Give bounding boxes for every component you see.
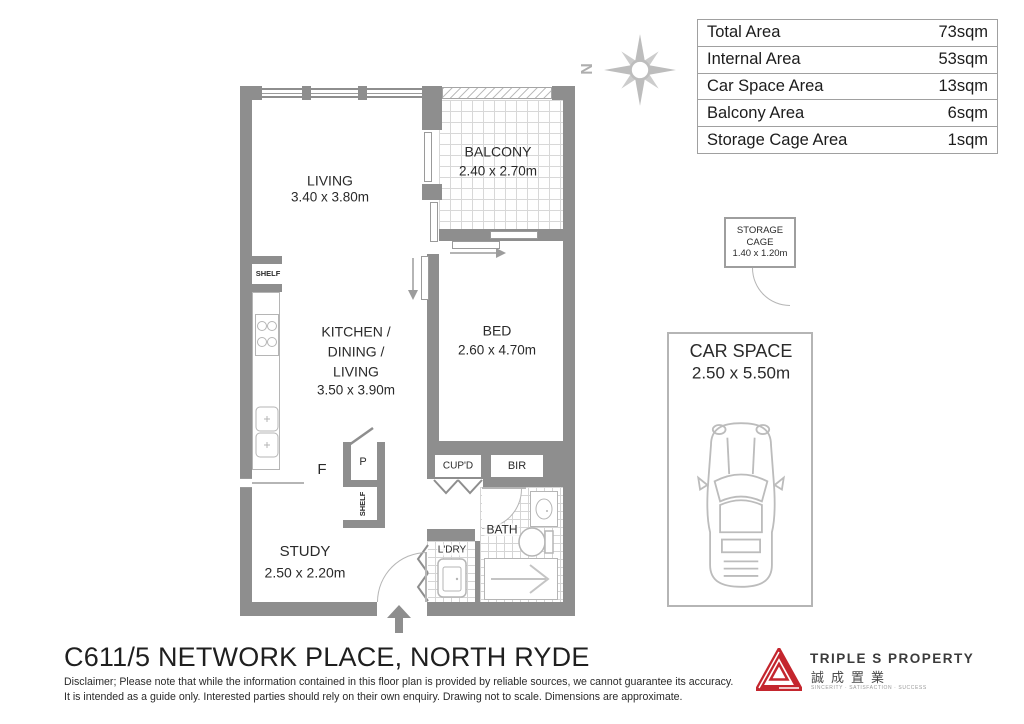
car-space: CAR SPACE 2.50 x 5.50m bbox=[667, 332, 813, 607]
wall-bottom-left bbox=[240, 602, 377, 616]
table-row: Total Area 73sqm bbox=[697, 19, 998, 47]
brand-tagline: SINCERITY · SATISFACTION · SUCCESS bbox=[811, 685, 927, 691]
floor-plan-page: { "page": { "title": "C611/5 NETWORK PLA… bbox=[0, 0, 1024, 724]
brand-chinese-name: 誠成置業 bbox=[811, 667, 891, 686]
area-label: Internal Area bbox=[707, 50, 801, 69]
property-address-title: C611/5 NETWORK PLACE, NORTH RYDE bbox=[64, 642, 590, 673]
shelf-wall-stub bbox=[252, 256, 282, 264]
kitchen-dims: 3.50 x 3.90m bbox=[317, 384, 395, 399]
pantry-wall-bottom bbox=[343, 520, 385, 528]
balcony-railing bbox=[442, 87, 552, 99]
shelf-wall-stub bbox=[252, 284, 282, 292]
table-row: Car Space Area 13sqm bbox=[697, 73, 998, 101]
area-value: 1sqm bbox=[948, 131, 988, 150]
wall-below-robe bbox=[483, 479, 563, 487]
car-icon bbox=[691, 414, 791, 596]
robe-label: BIR bbox=[508, 460, 526, 472]
shelf-vertical-label: SHELF bbox=[359, 492, 367, 517]
compass-north-label: N bbox=[579, 63, 597, 75]
disclaimer-line1: Disclaimer; Please note that while the i… bbox=[64, 676, 733, 688]
area-label: Car Space Area bbox=[707, 77, 823, 96]
storage-cage-line2: CAGE bbox=[747, 237, 774, 249]
compass-rose-icon bbox=[602, 32, 678, 108]
sliding-door-panel bbox=[430, 202, 438, 242]
living-name: LIVING bbox=[307, 173, 353, 188]
washer-icon bbox=[437, 558, 467, 598]
pantry-door-leaf bbox=[345, 424, 377, 446]
bed-name: BED bbox=[483, 323, 512, 338]
wall-bed-bottom bbox=[427, 441, 575, 453]
area-value: 13sqm bbox=[938, 77, 988, 96]
storage-cage-door-arc bbox=[752, 268, 790, 306]
robe-wall-right bbox=[545, 453, 563, 479]
basin-icon bbox=[530, 491, 558, 527]
living-dims: 3.40 x 3.80m bbox=[291, 191, 369, 206]
living-window bbox=[262, 88, 422, 98]
sliding-door-panel bbox=[421, 256, 429, 300]
table-row: Internal Area 53sqm bbox=[697, 46, 998, 74]
bath-label: BATH bbox=[484, 523, 519, 536]
study-dims: 2.50 x 2.20m bbox=[265, 565, 346, 580]
wall-left bbox=[240, 86, 252, 616]
area-label: Balcony Area bbox=[707, 104, 804, 123]
entry-door-arc bbox=[377, 552, 427, 602]
balcony-dims: 2.40 x 2.70m bbox=[459, 165, 537, 180]
disclaimer-line2: It is intended as a guide only. Interest… bbox=[64, 691, 683, 703]
entry-door-leaf bbox=[425, 552, 427, 602]
entry-arrow-icon bbox=[387, 605, 411, 633]
kitchen-name-line3: LIVING bbox=[333, 364, 379, 379]
storage-cage-dims: 1.40 x 1.20m bbox=[733, 248, 788, 260]
cupboard-doors-icon bbox=[433, 479, 483, 495]
wall-top-mid bbox=[422, 86, 442, 100]
study-window bbox=[240, 478, 252, 488]
kitchen-name-line1: KITCHEN / bbox=[321, 324, 390, 339]
floor-plan: BALCONY 2.40 x 2.70m LIVING 3.40 x 3.80m… bbox=[240, 86, 575, 616]
kitchen-name-line2: DINING / bbox=[328, 344, 385, 359]
area-label: Storage Cage Area bbox=[707, 131, 847, 150]
car-space-dims: 2.50 x 5.50m bbox=[692, 365, 790, 384]
kitchen-bench-return bbox=[252, 482, 304, 484]
table-row: Balcony Area 6sqm bbox=[697, 99, 998, 127]
area-summary-table: Total Area 73sqm Internal Area 53sqm Car… bbox=[697, 19, 998, 154]
window-mullion bbox=[358, 86, 367, 100]
laundry-wall-top bbox=[427, 529, 475, 541]
storage-cage: STORAGE CAGE 1.40 x 1.20m bbox=[724, 217, 796, 268]
sliding-door-panel bbox=[490, 231, 538, 239]
toilet-icon bbox=[518, 526, 554, 558]
wall-right bbox=[563, 86, 575, 616]
fridge-label: F bbox=[317, 462, 326, 479]
brand-name: TRIPLE S PROPERTY bbox=[810, 651, 974, 666]
laundry-bath-divider bbox=[475, 541, 480, 602]
area-value: 53sqm bbox=[938, 50, 988, 69]
balcony-name: BALCONY bbox=[465, 144, 532, 159]
shelf-top-label: SHELF bbox=[256, 270, 281, 278]
table-row: Storage Cage Area 1sqm bbox=[697, 126, 998, 154]
study-name: STUDY bbox=[280, 544, 331, 561]
storage-cage-line1: STORAGE bbox=[737, 225, 783, 237]
wall-living-balcony bbox=[422, 184, 442, 200]
compass: N bbox=[594, 32, 684, 108]
sliding-door-panel bbox=[424, 132, 432, 182]
slide-arrow-right-icon bbox=[450, 247, 506, 259]
area-label: Total Area bbox=[707, 23, 780, 42]
wall-bottom-right bbox=[427, 602, 575, 616]
window-mullion bbox=[302, 86, 311, 100]
area-value: 6sqm bbox=[948, 104, 988, 123]
pantry-wall-left bbox=[343, 442, 351, 484]
laundry-label: L'DRY bbox=[437, 545, 467, 556]
area-value: 73sqm bbox=[938, 23, 988, 42]
bed-dims: 2.60 x 4.70m bbox=[458, 344, 536, 359]
shower-arrow-icon bbox=[486, 560, 556, 598]
slide-arrow-down-icon bbox=[407, 258, 419, 300]
car-space-name: CAR SPACE bbox=[690, 342, 793, 362]
stove-icon bbox=[255, 314, 279, 356]
logo-triangle-icon bbox=[756, 648, 802, 694]
sink-icon bbox=[255, 406, 279, 458]
pantry-wall-mid bbox=[343, 480, 385, 487]
cupboard-label: CUP'D bbox=[443, 461, 473, 472]
wall-living-balcony bbox=[422, 100, 442, 130]
pantry-label: P bbox=[359, 456, 366, 468]
